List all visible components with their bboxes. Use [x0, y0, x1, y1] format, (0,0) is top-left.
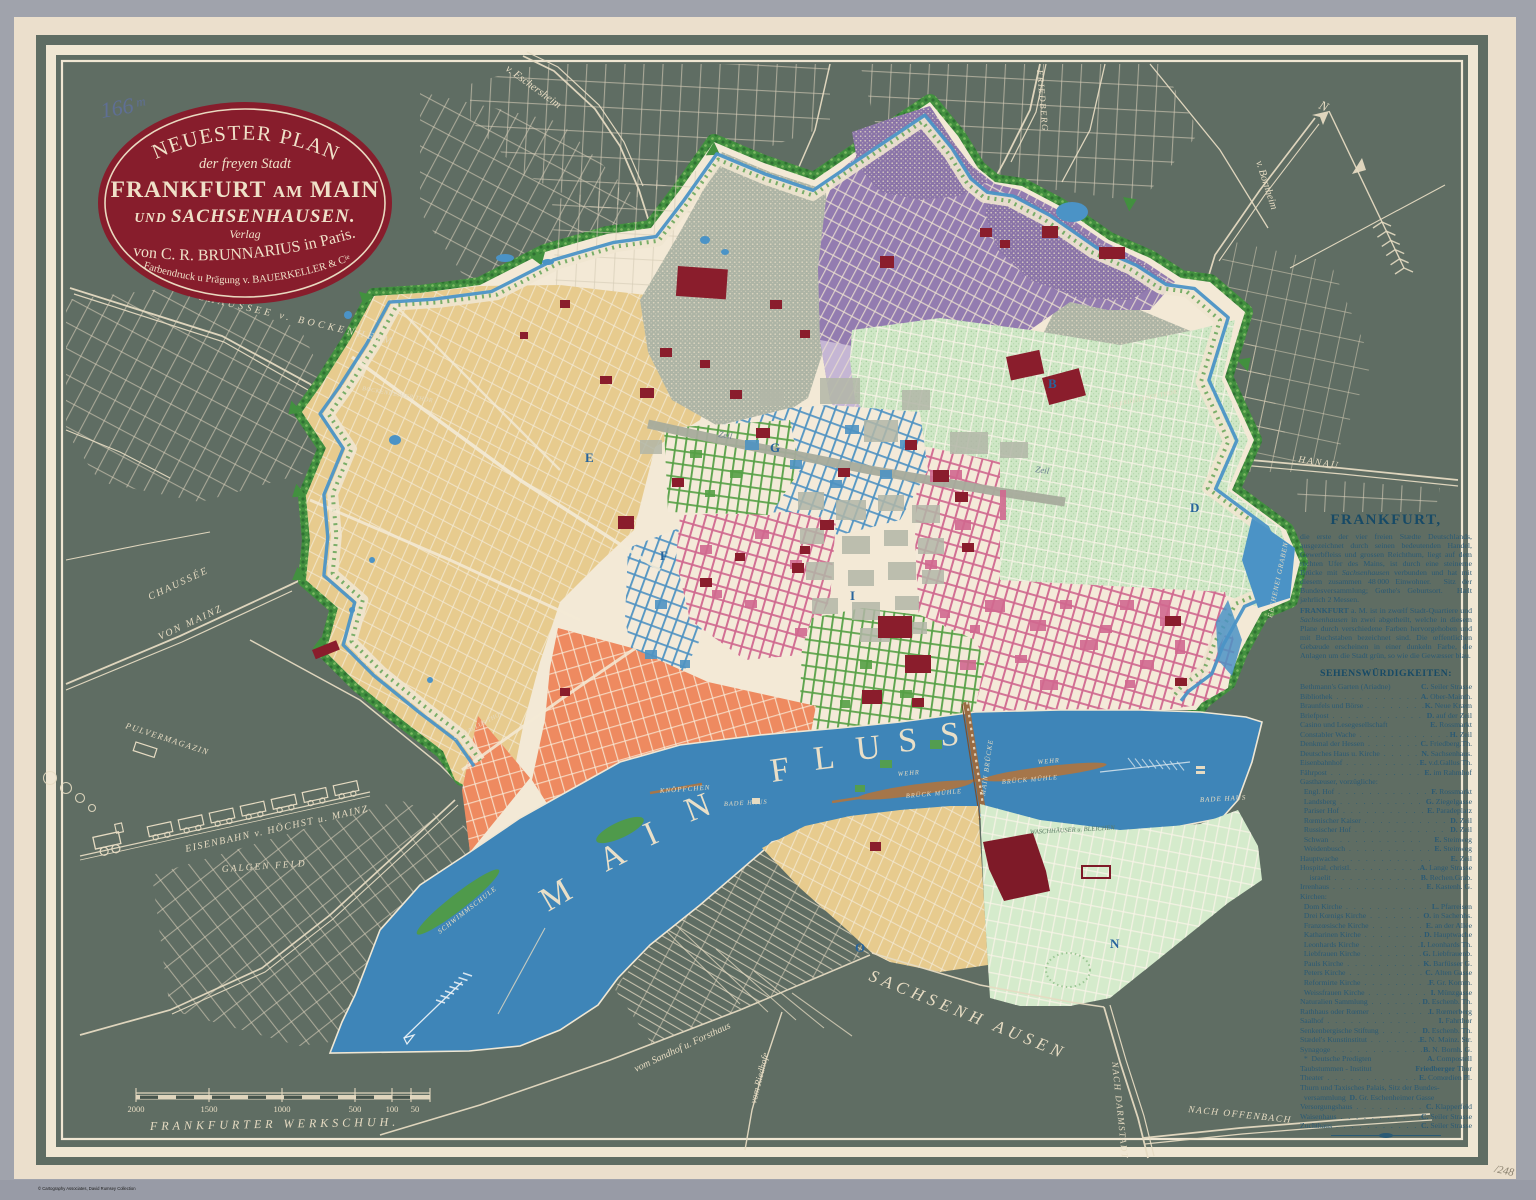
svg-text:E: E: [585, 450, 594, 465]
svg-text:N: N: [1110, 936, 1120, 951]
svg-text:1000: 1000: [274, 1104, 291, 1114]
svg-text:B: B: [1048, 376, 1057, 391]
svg-text:Zeil: Zeil: [1035, 464, 1051, 476]
svg-text:UND SACHSENHAUSEN.: UND SACHSENHAUSEN.: [134, 206, 355, 227]
svg-text:S: S: [939, 716, 960, 754]
svg-text:I: I: [850, 588, 855, 603]
svg-text:F: F: [660, 548, 668, 563]
svg-text:500: 500: [349, 1104, 362, 1114]
svg-text:Zeil: Zeil: [718, 429, 734, 441]
svg-text:2000: 2000: [128, 1104, 145, 1114]
svg-text:der freyen Stadt: der freyen Stadt: [199, 156, 292, 172]
svg-text:U: U: [854, 729, 882, 768]
svg-text:100: 100: [386, 1104, 399, 1114]
svg-text:FRANKFURT AM MAIN: FRANKFURT AM MAIN: [111, 177, 380, 203]
svg-text:1500: 1500: [201, 1104, 218, 1114]
svg-text:G: G: [770, 440, 780, 455]
svg-text:Verlag: Verlag: [229, 227, 260, 241]
svg-text:S: S: [896, 721, 918, 760]
svg-text:D: D: [1190, 500, 1199, 515]
svg-text:O: O: [855, 940, 865, 955]
svg-text:50: 50: [411, 1104, 420, 1114]
svg-text:© Cartography Associates, Davi: © Cartography Associates, David Rumsey C…: [38, 1186, 136, 1191]
